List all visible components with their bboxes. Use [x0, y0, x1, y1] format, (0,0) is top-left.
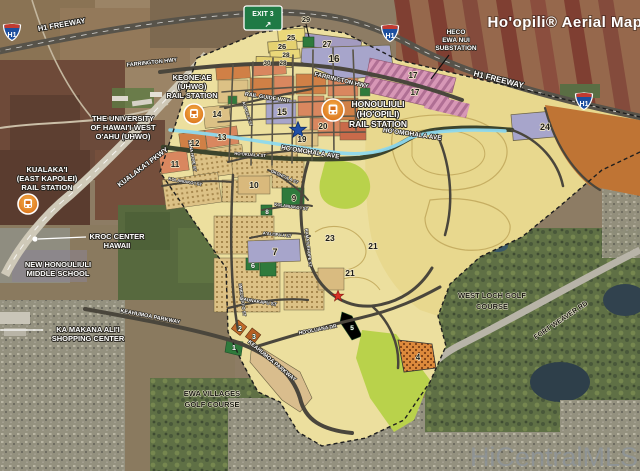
parcel-label-8: 8	[265, 209, 269, 216]
svg-text:H1: H1	[580, 101, 589, 108]
label-ka-makana: KA MAKANA ALI'I SHOPPING CENTER	[52, 325, 125, 343]
parcel-label-28a: 28	[282, 52, 290, 59]
honouliuli-station-icon	[322, 99, 344, 121]
hoopili-aerial-map: EXIT 3 ↗ H1 H1 H1	[0, 0, 640, 471]
parcel-label-13: 13	[218, 133, 227, 142]
parcel-label-2: 2	[238, 326, 242, 333]
parcel-label-19: 19	[298, 135, 307, 144]
svg-text:THE UNIVERSITY: THE UNIVERSITY	[92, 114, 154, 123]
svg-text:O'AHU (UHWO): O'AHU (UHWO)	[96, 132, 151, 141]
parcel-label-27: 27	[323, 40, 332, 49]
kualakai-station-icon	[18, 194, 38, 214]
svg-text:KUALAKA'I: KUALAKA'I	[27, 165, 68, 174]
parcel-label-23: 23	[325, 233, 335, 243]
svg-text:COURSE: COURSE	[476, 302, 508, 311]
svg-text:EWA VILLAGES: EWA VILLAGES	[184, 389, 240, 398]
parcel-label-20: 20	[319, 122, 328, 131]
svg-text:HECO: HECO	[447, 29, 466, 36]
parcel-label-24: 24	[540, 122, 550, 132]
svg-text:RAIL STATION: RAIL STATION	[349, 119, 407, 129]
parcel-label-10: 10	[249, 180, 259, 190]
parcel-label-17a: 17	[409, 71, 418, 80]
parcel-label-30: 30	[263, 60, 271, 67]
svg-text:GOLF COURSE: GOLF COURSE	[184, 400, 239, 409]
parcel-label-11: 11	[171, 160, 180, 169]
parcel-label-3: 3	[252, 334, 256, 341]
parcel-label-17b: 17	[411, 88, 420, 97]
watermark: HiCentralMLS	[470, 442, 638, 471]
label-honouliuli-station: HONOULIULI (HO'OPILI) RAIL STATION	[349, 99, 407, 129]
svg-text:H1: H1	[386, 33, 395, 40]
svg-text:(UHWO): (UHWO)	[178, 82, 207, 91]
parcel-label-4: 4	[416, 353, 421, 362]
svg-text:HONOULIULI: HONOULIULI	[352, 99, 405, 109]
parcel-label-5: 5	[350, 325, 354, 332]
svg-text:H1: H1	[8, 32, 17, 39]
kroc-dot	[32, 236, 37, 241]
svg-text:(HO'OPILI): (HO'OPILI)	[357, 109, 400, 119]
parcel-label-29: 29	[302, 15, 310, 24]
parcel-label-16: 16	[328, 54, 340, 65]
parcel-label-1: 1	[232, 343, 236, 352]
keoneae-station-icon	[184, 104, 204, 124]
parcel-label-14: 14	[213, 110, 222, 119]
svg-text:HAWAII: HAWAII	[104, 241, 131, 250]
parcel-label-6: 6	[251, 261, 255, 270]
parcel-label-15: 15	[277, 107, 287, 117]
svg-text:KROC CENTER: KROC CENTER	[89, 232, 145, 241]
parcel-label-9: 9	[292, 194, 297, 203]
exit-sign-label: EXIT 3	[252, 11, 274, 18]
parcel-label-7: 7	[272, 247, 277, 257]
svg-text:OF HAWAI'I-WEST: OF HAWAI'I-WEST	[90, 123, 156, 132]
exit-sign-arrow-icon: ↗	[265, 20, 272, 29]
svg-text:MIDDLE SCHOOL: MIDDLE SCHOOL	[27, 269, 90, 278]
svg-text:(EAST KAPOLEI): (EAST KAPOLEI)	[17, 174, 78, 183]
svg-text:EWA NUI: EWA NUI	[442, 37, 470, 44]
svg-text:SHOPPING CENTER: SHOPPING CENTER	[52, 334, 125, 343]
svg-text:SUBSTATION: SUBSTATION	[435, 45, 477, 52]
parcel-label-26: 26	[278, 42, 286, 51]
svg-text:WEST LOCH GOLF: WEST LOCH GOLF	[458, 291, 526, 300]
exit-3-sign: EXIT 3 ↗	[244, 6, 282, 30]
parcel-label-28b: 28	[279, 60, 287, 67]
label-middle-school: NEW HONOULIULI MIDDLE SCHOOL	[25, 260, 91, 278]
svg-text:RAIL STATION: RAIL STATION	[166, 91, 217, 100]
svg-text:KEONE'AE: KEONE'AE	[173, 73, 212, 82]
svg-text:NEW HONOULIULI: NEW HONOULIULI	[25, 260, 91, 269]
parcel-label-21a: 21	[368, 241, 378, 251]
svg-text:RAIL STATION: RAIL STATION	[21, 183, 72, 192]
page-title: Ho'opili® Aerial Map	[488, 14, 640, 31]
svg-text:KA MAKANA ALI'I: KA MAKANA ALI'I	[56, 325, 119, 334]
label-uhwo: THE UNIVERSITY OF HAWAI'I-WEST O'AHU (UH…	[90, 114, 156, 141]
parcel-label-21b: 21	[345, 268, 355, 278]
parcel-label-12: 12	[191, 139, 200, 148]
parcel-label-25: 25	[287, 33, 295, 42]
map-canvas: EXIT 3 ↗ H1 H1 H1	[0, 0, 640, 471]
